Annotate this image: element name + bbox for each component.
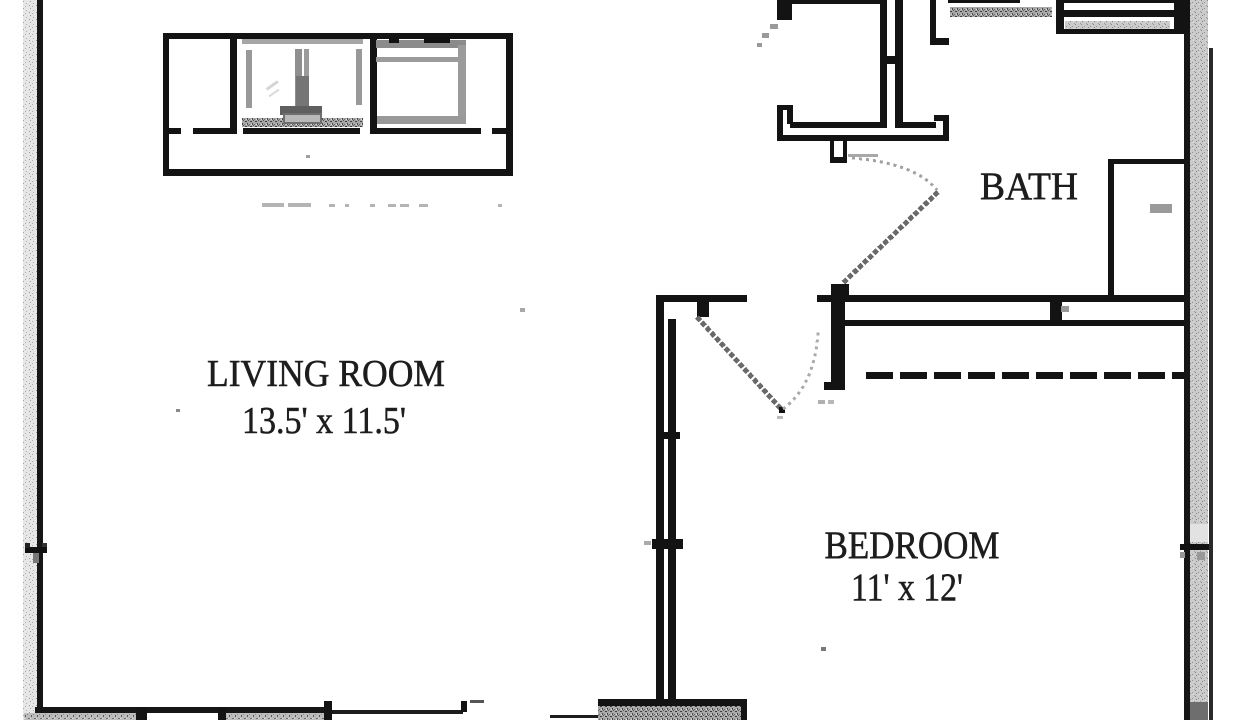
svg-text:BEDROOM: BEDROOM [825,524,1000,567]
svg-text:LIVING ROOM: LIVING ROOM [207,353,445,395]
svg-text:11' x 12': 11' x 12' [851,566,963,609]
svg-text:13.5' x 11.5': 13.5' x 11.5' [242,400,406,442]
svg-text:BATH: BATH [980,165,1078,208]
